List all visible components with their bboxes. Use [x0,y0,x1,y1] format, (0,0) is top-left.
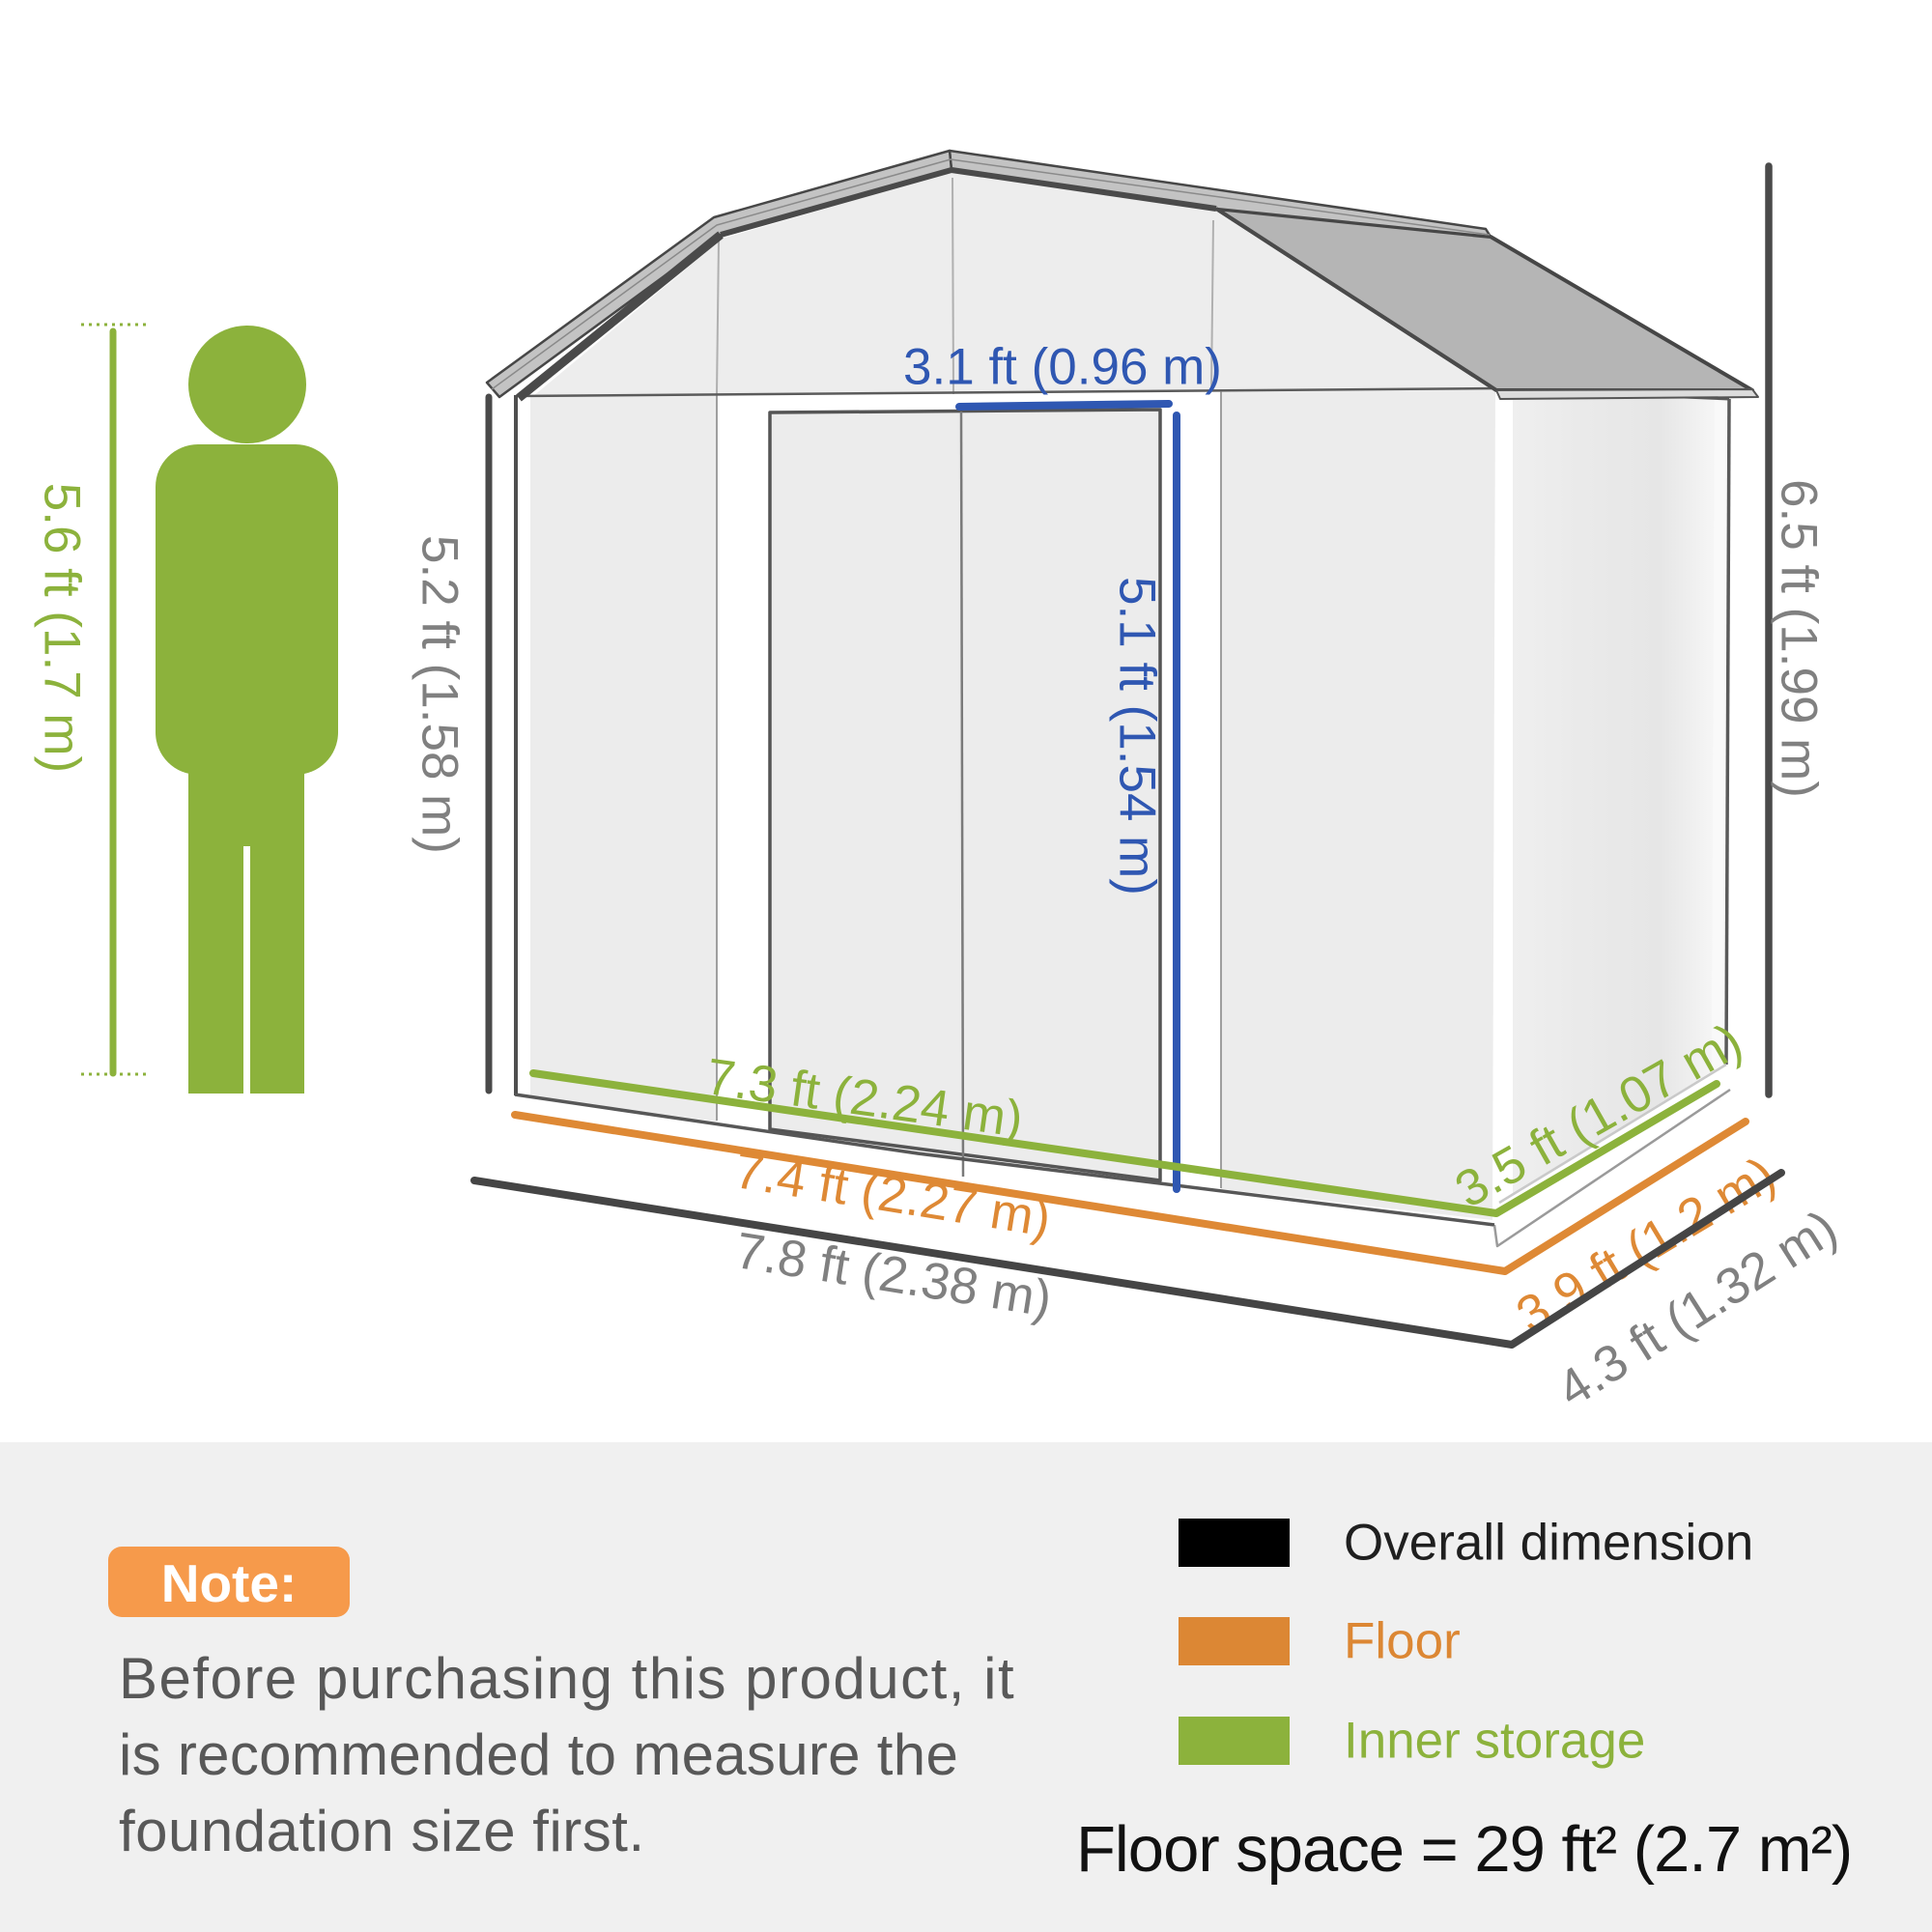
svg-text:Floor: Floor [1344,1613,1461,1670]
svg-text:Note:: Note: [161,1553,298,1613]
svg-text:5.6 ft (1.7 m): 5.6 ft (1.7 m) [34,483,91,773]
svg-text:Floor space = 29 ft² (2.7 m²): Floor space = 29 ft² (2.7 m²) [1076,1813,1852,1886]
svg-text:is recommended to measure the: is recommended to measure the [119,1722,958,1787]
svg-text:Before purchasing this product: Before purchasing this product, it [119,1646,1015,1711]
svg-text:5.2 ft (1.58 m): 5.2 ft (1.58 m) [412,535,469,854]
svg-text:6.5 ft (1.99 m): 6.5 ft (1.99 m) [1771,479,1828,798]
svg-text:Overall dimension: Overall dimension [1344,1515,1753,1572]
svg-text:3.1 ft (0.96 m): 3.1 ft (0.96 m) [903,339,1222,396]
svg-text:foundation size first.: foundation size first. [119,1799,645,1863]
svg-text:5.1 ft (1.54 m): 5.1 ft (1.54 m) [1109,577,1166,895]
svg-text:Inner storage: Inner storage [1344,1713,1645,1770]
